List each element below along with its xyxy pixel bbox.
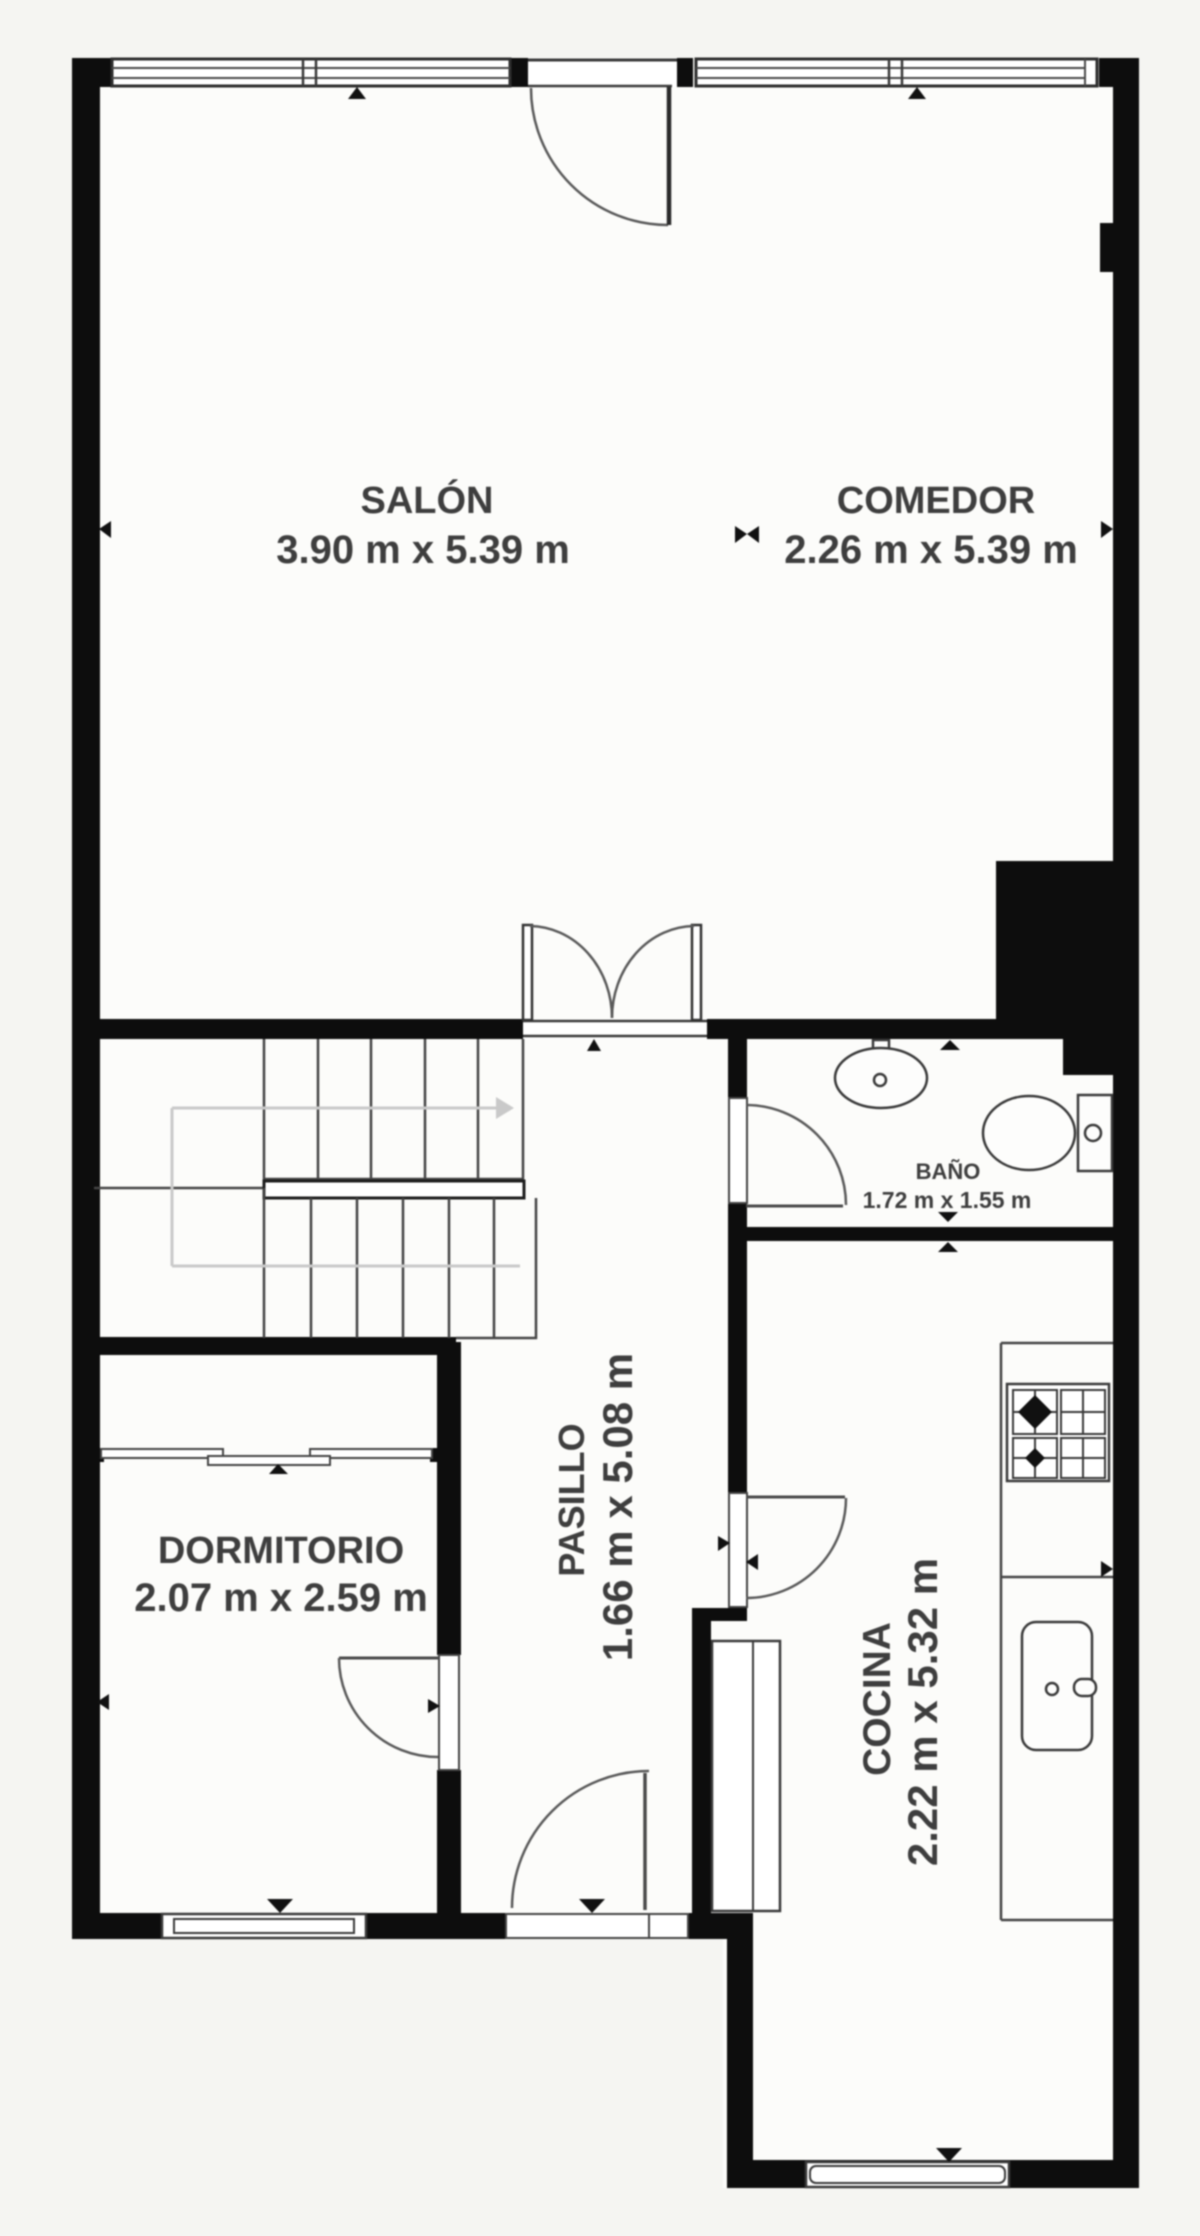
- svg-text:COCINA: COCINA: [856, 1622, 899, 1776]
- svg-text:BAÑO: BAÑO: [916, 1159, 981, 1184]
- svg-text:1.72 m x 1.55 m: 1.72 m x 1.55 m: [863, 1187, 1032, 1213]
- svg-text:3.90 m x 5.39 m: 3.90 m x 5.39 m: [276, 528, 570, 572]
- svg-text:SALÓN: SALÓN: [361, 478, 494, 522]
- svg-text:PASILLO: PASILLO: [551, 1423, 592, 1576]
- svg-text:2.22 m x 5.32 m: 2.22 m x 5.32 m: [899, 1558, 946, 1866]
- svg-text:COMEDOR: COMEDOR: [837, 480, 1035, 522]
- svg-text:DORMITORIO: DORMITORIO: [158, 1530, 404, 1572]
- svg-text:2.07 m x 2.59 m: 2.07 m x 2.59 m: [134, 1576, 428, 1620]
- svg-text:1.66 m x 5.08 m: 1.66 m x 5.08 m: [594, 1353, 641, 1661]
- svg-text:2.26 m x 5.39 m: 2.26 m x 5.39 m: [784, 528, 1078, 572]
